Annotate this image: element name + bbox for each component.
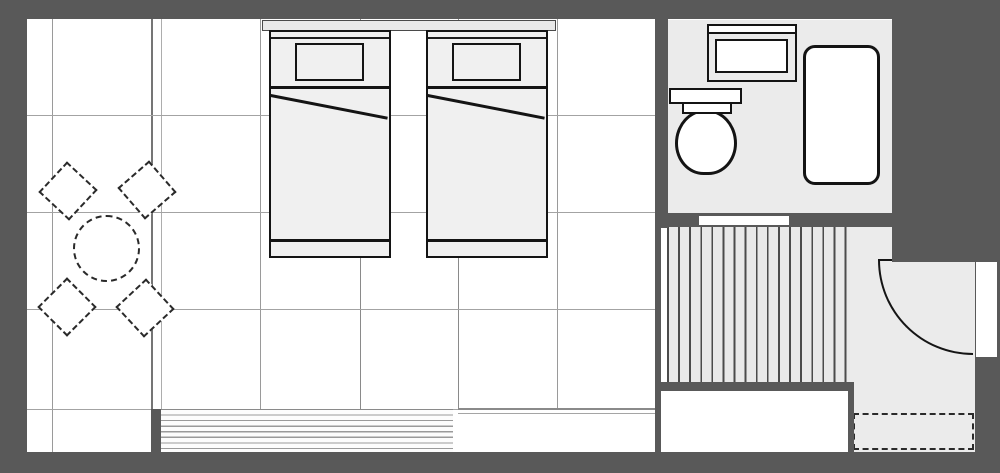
vanity-sink [707, 24, 797, 82]
vanity-basin [715, 39, 788, 73]
louver-window [161, 409, 453, 452]
sheet-fold-line [271, 94, 388, 119]
bathtub [803, 45, 880, 185]
round-table [73, 215, 140, 282]
counter-sill-line [458, 413, 655, 414]
striped-flooring [667, 227, 850, 382]
bed-2 [426, 30, 548, 258]
sheet-fold-line [428, 94, 545, 119]
grid-line-vertical [161, 19, 162, 409]
pillow [452, 43, 521, 81]
bed-1 [269, 30, 391, 258]
grid-line-vertical [260, 19, 261, 452]
wall-window-pillar [151, 409, 161, 452]
wall-top [0, 0, 1000, 19]
floor-plan [0, 0, 1000, 473]
hallway-floor [661, 227, 850, 382]
wall-left [0, 0, 27, 473]
pillow [295, 43, 364, 81]
wall-bathroom-left [655, 19, 668, 228]
foot-board-line [428, 239, 546, 242]
blanket-edge-line [428, 86, 546, 89]
wall-entry-left [848, 391, 854, 452]
vanity-counter-line [709, 32, 795, 34]
toilet-bowl [675, 109, 737, 175]
toilet-tank [669, 88, 742, 104]
foot-board-line [271, 239, 389, 242]
wall-bottom [0, 452, 1000, 473]
grid-line-vertical [557, 19, 558, 452]
wall-hallway-left [655, 227, 661, 452]
entry-door-opening [976, 262, 997, 357]
closet [661, 391, 848, 452]
window-counter [458, 408, 655, 452]
bed-head-line [428, 37, 546, 39]
wall-hallway-bottom [655, 382, 854, 391]
bathroom-door-opening [699, 216, 789, 225]
bed-head-line [271, 37, 389, 39]
blanket-edge-line [271, 86, 389, 89]
door-mat [853, 413, 974, 450]
grid-line-vertical [52, 19, 53, 452]
